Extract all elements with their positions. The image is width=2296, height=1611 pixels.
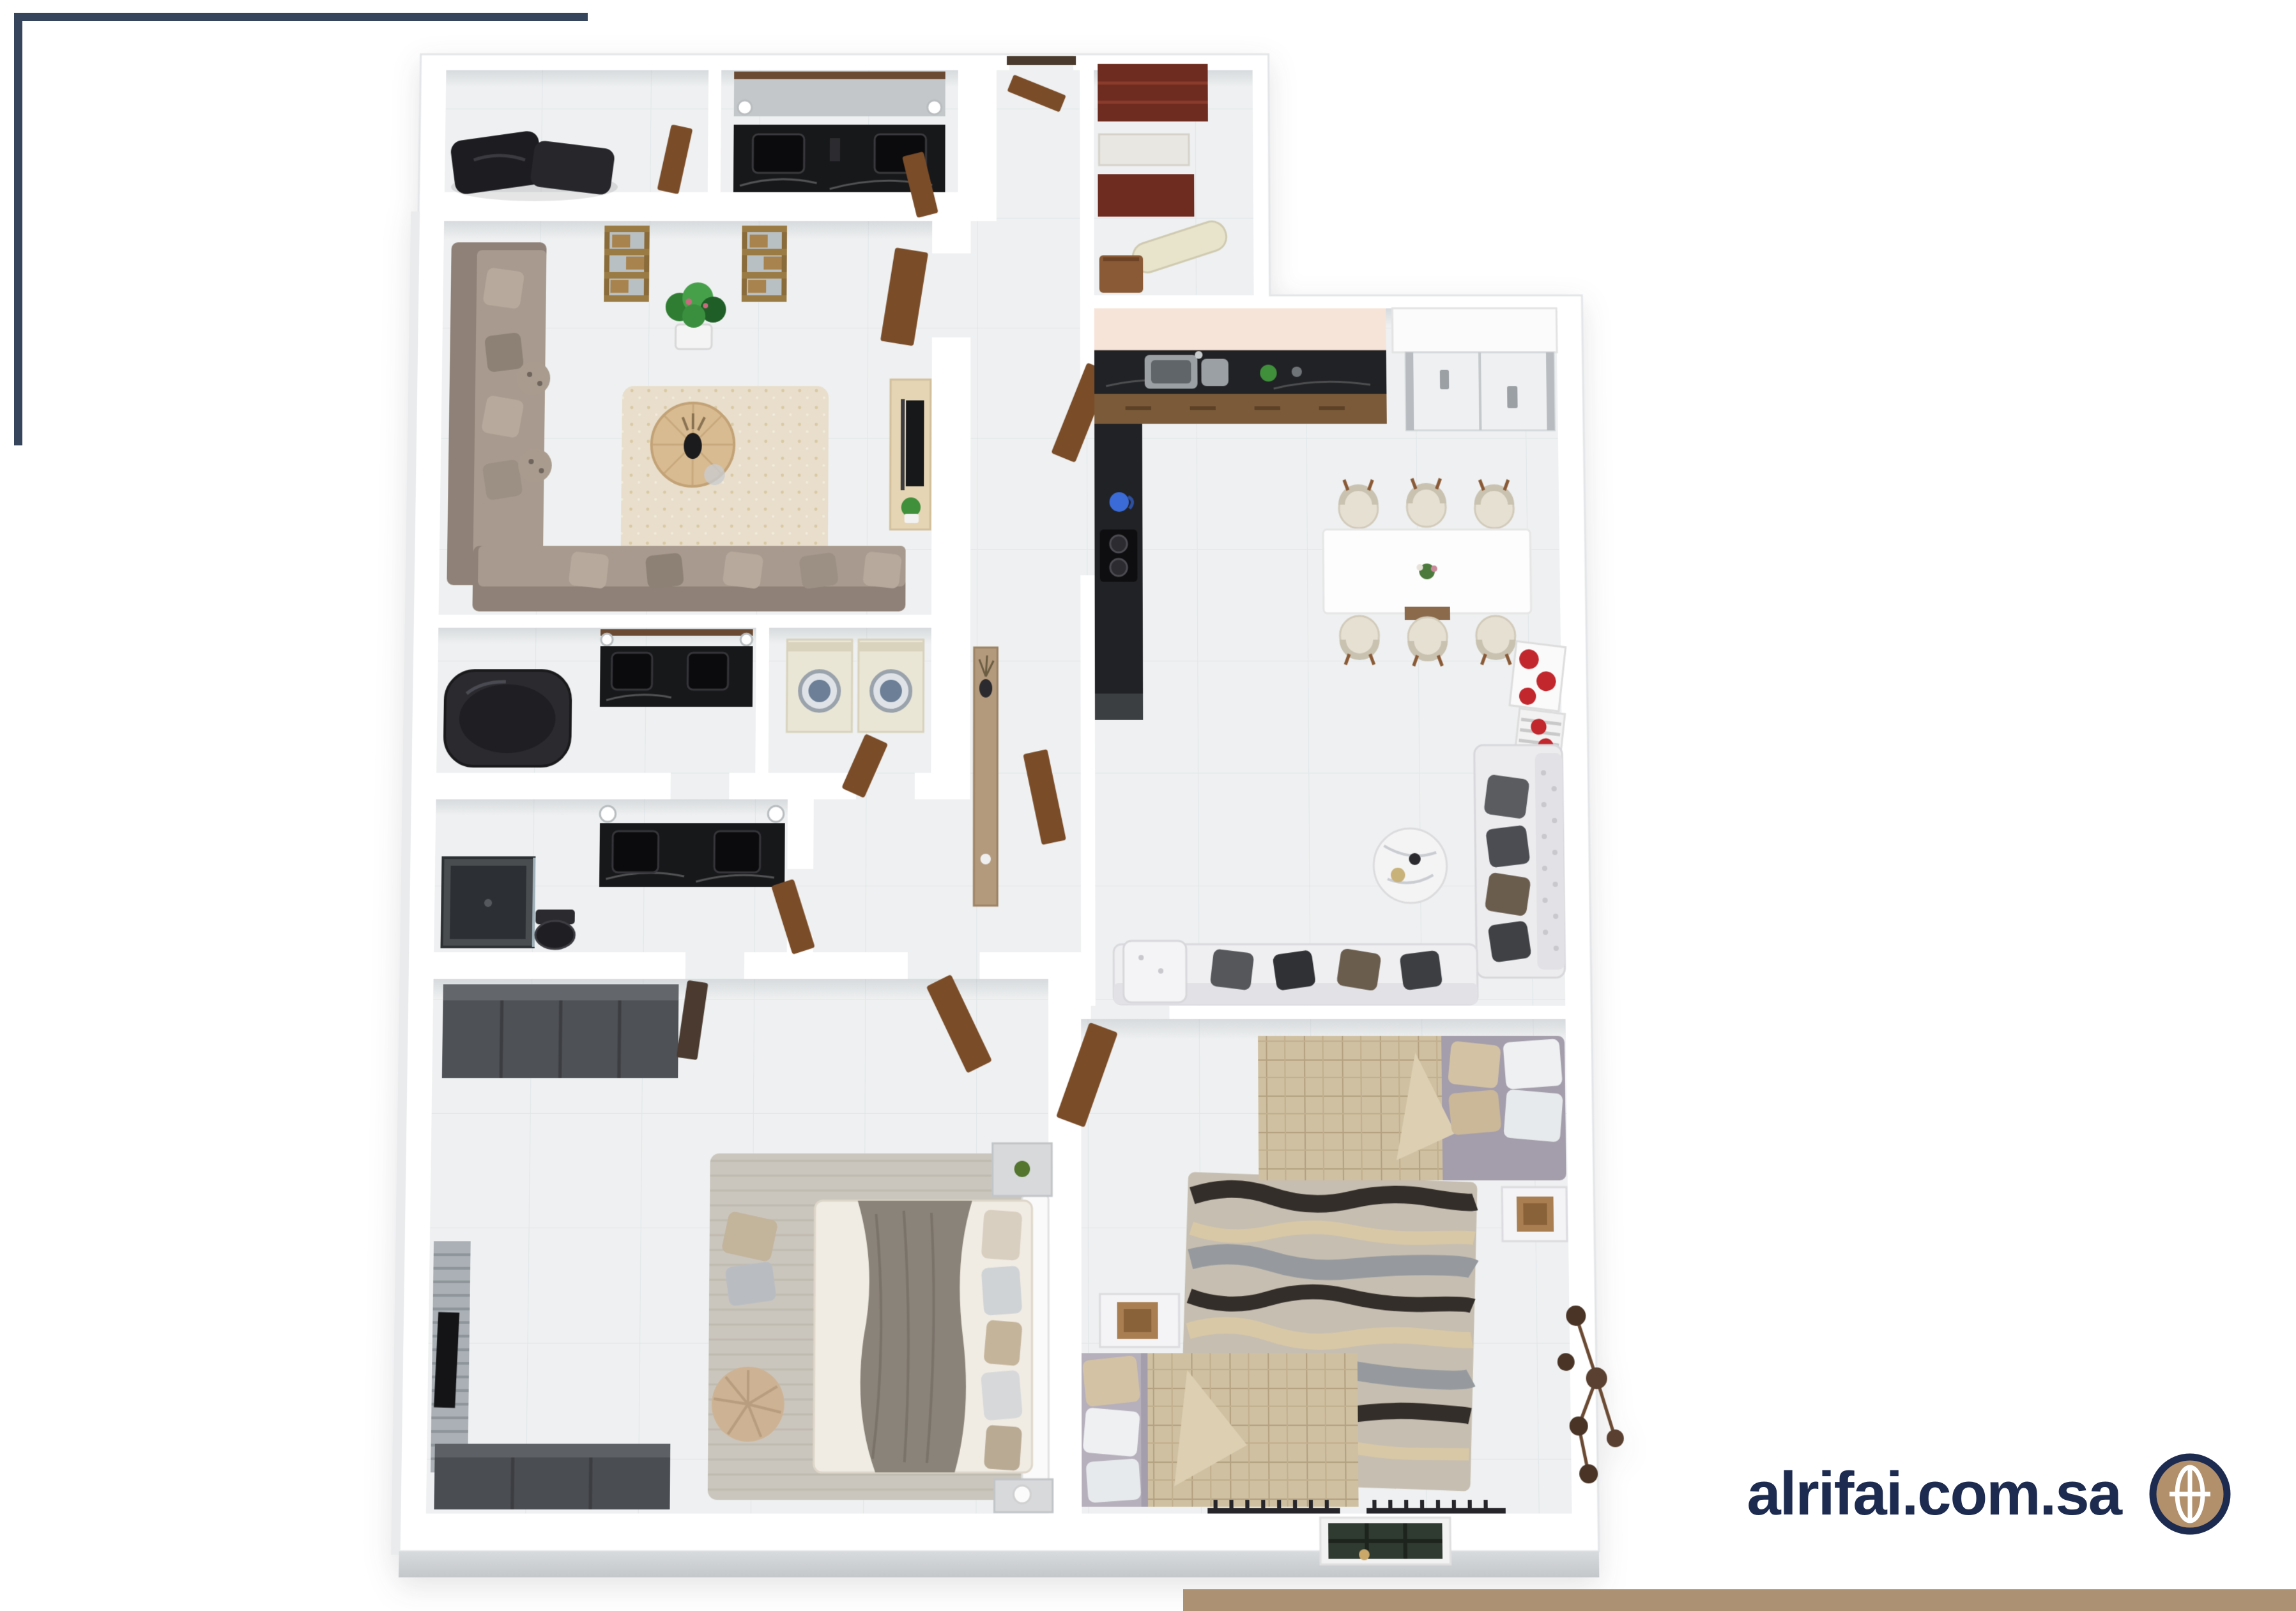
double-bed — [814, 1194, 1049, 1494]
sofa-bottom — [1114, 941, 1478, 1004]
sconce-lamp — [928, 100, 942, 114]
ladder-shelf — [604, 226, 650, 302]
sconce-lamp — [768, 806, 784, 822]
kitchen-counter — [1094, 350, 1386, 394]
brand-watermark: alrifai.com.sa — [1747, 1452, 2232, 1536]
counter-plant — [1260, 365, 1276, 382]
maroon-shelf — [1098, 64, 1208, 121]
mirror — [734, 79, 945, 116]
maroon-cabinet — [1098, 174, 1194, 216]
nightstand-white — [1100, 1294, 1179, 1347]
sconce-lamp — [740, 634, 752, 646]
sconce-lamp — [601, 634, 613, 646]
globe-icon — [2148, 1452, 2232, 1536]
nightstand-white — [1502, 1187, 1567, 1242]
gray-throw — [857, 1201, 972, 1472]
single-bed-bottom — [1082, 1353, 1359, 1506]
sconce-lamp — [600, 806, 616, 822]
single-bed-top — [1258, 1036, 1566, 1180]
tv — [906, 401, 924, 487]
tall-cabinet — [1392, 308, 1557, 352]
green-wall-niche — [1320, 1518, 1451, 1564]
washer — [787, 640, 852, 732]
pillow — [1083, 1407, 1140, 1457]
wardrobe — [442, 984, 679, 1078]
mirror-frame — [734, 72, 945, 79]
tufted-sofa-right — [1474, 745, 1565, 978]
upper-cabinets — [1094, 308, 1386, 350]
pillow — [984, 1425, 1022, 1471]
living-rug — [620, 386, 829, 569]
credenza — [434, 1444, 670, 1509]
door-frame — [1007, 56, 1076, 65]
pillow — [983, 1320, 1022, 1366]
pillow — [1503, 1038, 1563, 1090]
pillow — [981, 1210, 1023, 1261]
blue-kettle — [1110, 492, 1129, 512]
floor-cushion — [724, 1261, 777, 1307]
vessel-sink — [753, 134, 804, 173]
footer-accent-bar — [1183, 1589, 2296, 1611]
checkered-blanket — [1147, 1353, 1358, 1506]
brand-website-text: alrifai.com.sa — [1747, 1459, 2121, 1529]
sconce-lamp — [738, 100, 752, 114]
dryer — [859, 640, 924, 732]
pillow — [981, 1370, 1023, 1421]
pillow — [1448, 1041, 1501, 1089]
pillow — [1448, 1090, 1502, 1136]
marble-coffee-table — [1374, 829, 1447, 903]
black-toilet — [535, 909, 575, 949]
pillow — [1503, 1089, 1563, 1142]
pillow — [981, 1266, 1023, 1316]
dining-set — [1322, 479, 1531, 666]
coffee-table — [651, 403, 734, 486]
tv-console — [890, 380, 930, 530]
screenshot-canvas: alrifai.com.sa — [0, 0, 2296, 1611]
pouf — [712, 1367, 785, 1442]
dark-armchair — [530, 140, 616, 196]
floor-plan — [0, 0, 2296, 1611]
armchair — [1124, 941, 1187, 1002]
white-bench — [1099, 134, 1189, 165]
vessel-sink — [714, 831, 760, 872]
vessel-sink — [687, 653, 728, 690]
vessel-sink — [613, 831, 659, 872]
ladder-shelf — [742, 226, 787, 302]
radiator-panel — [431, 1241, 471, 1472]
pillow — [1085, 1458, 1141, 1503]
vessel-sink — [611, 653, 652, 690]
table-lamp — [1014, 1486, 1031, 1504]
pillow — [1082, 1355, 1141, 1407]
